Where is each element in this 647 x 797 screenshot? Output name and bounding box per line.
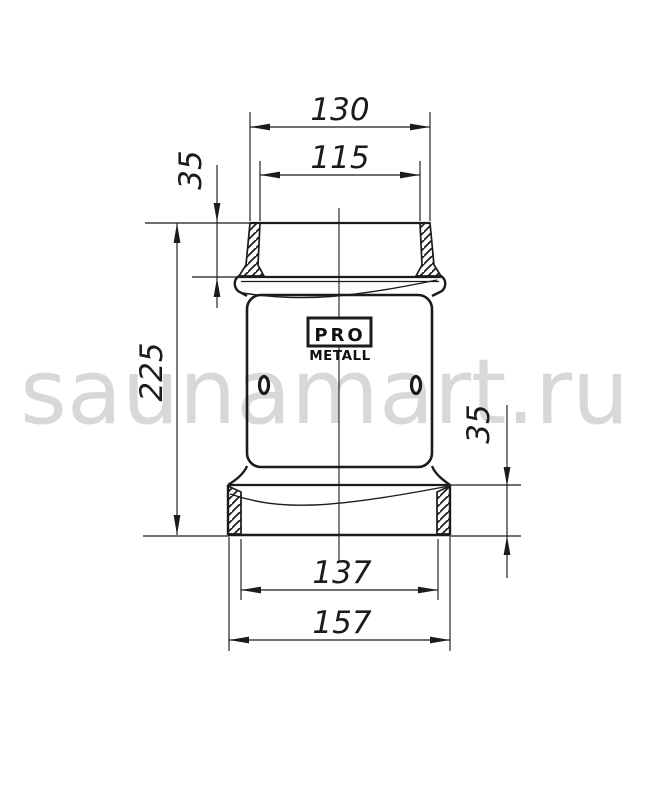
top-socket-right-wall <box>416 223 441 276</box>
lower-flare-left-edge <box>228 466 247 485</box>
technical-drawing-svg: PRO METALL <box>0 0 647 797</box>
upper-flare-right-edge <box>432 276 445 296</box>
arrow-225-bottom <box>174 515 181 535</box>
arrow-137-right <box>418 587 438 594</box>
arrow-35top-lower <box>214 278 221 297</box>
arrow-115-left <box>260 172 280 179</box>
arrow-157-right <box>430 637 450 644</box>
arrow-115-right <box>400 172 420 179</box>
arrow-130-left <box>250 124 270 131</box>
lower-flare-right-edge <box>432 466 450 485</box>
dim-label-35-right: 35 <box>461 404 497 443</box>
arrow-35right-upper <box>504 467 511 486</box>
arrow-130-right <box>410 124 430 131</box>
dim-label-115: 115 <box>310 140 369 176</box>
top-socket <box>239 223 441 276</box>
right-rivet-hole <box>412 377 421 394</box>
dim-label-137: 137 <box>312 555 371 591</box>
arrow-35top-upper <box>214 203 221 222</box>
arrow-137-left <box>241 587 261 594</box>
left-rivet-hole <box>260 377 269 394</box>
logo-line2: METALL <box>309 348 370 364</box>
part-outline <box>228 208 450 562</box>
dim-label-225: 225 <box>134 342 170 401</box>
logo-line1: PRO <box>314 325 365 346</box>
top-socket-left-wall <box>239 223 264 276</box>
dim-label-35-top: 35 <box>173 150 209 189</box>
dim-label-157: 157 <box>312 605 371 641</box>
bottom-collar-left-wall <box>228 486 241 534</box>
dimension-labels: 130 115 35 225 35 137 157 <box>134 92 497 641</box>
product-drawing-page: saunamart.ru <box>0 0 647 797</box>
arrow-225-top <box>174 223 181 243</box>
bottom-collar-right-wall <box>437 486 450 534</box>
dim-label-130: 130 <box>310 92 369 128</box>
arrow-35right-lower <box>504 536 511 555</box>
arrow-157-left <box>229 637 249 644</box>
